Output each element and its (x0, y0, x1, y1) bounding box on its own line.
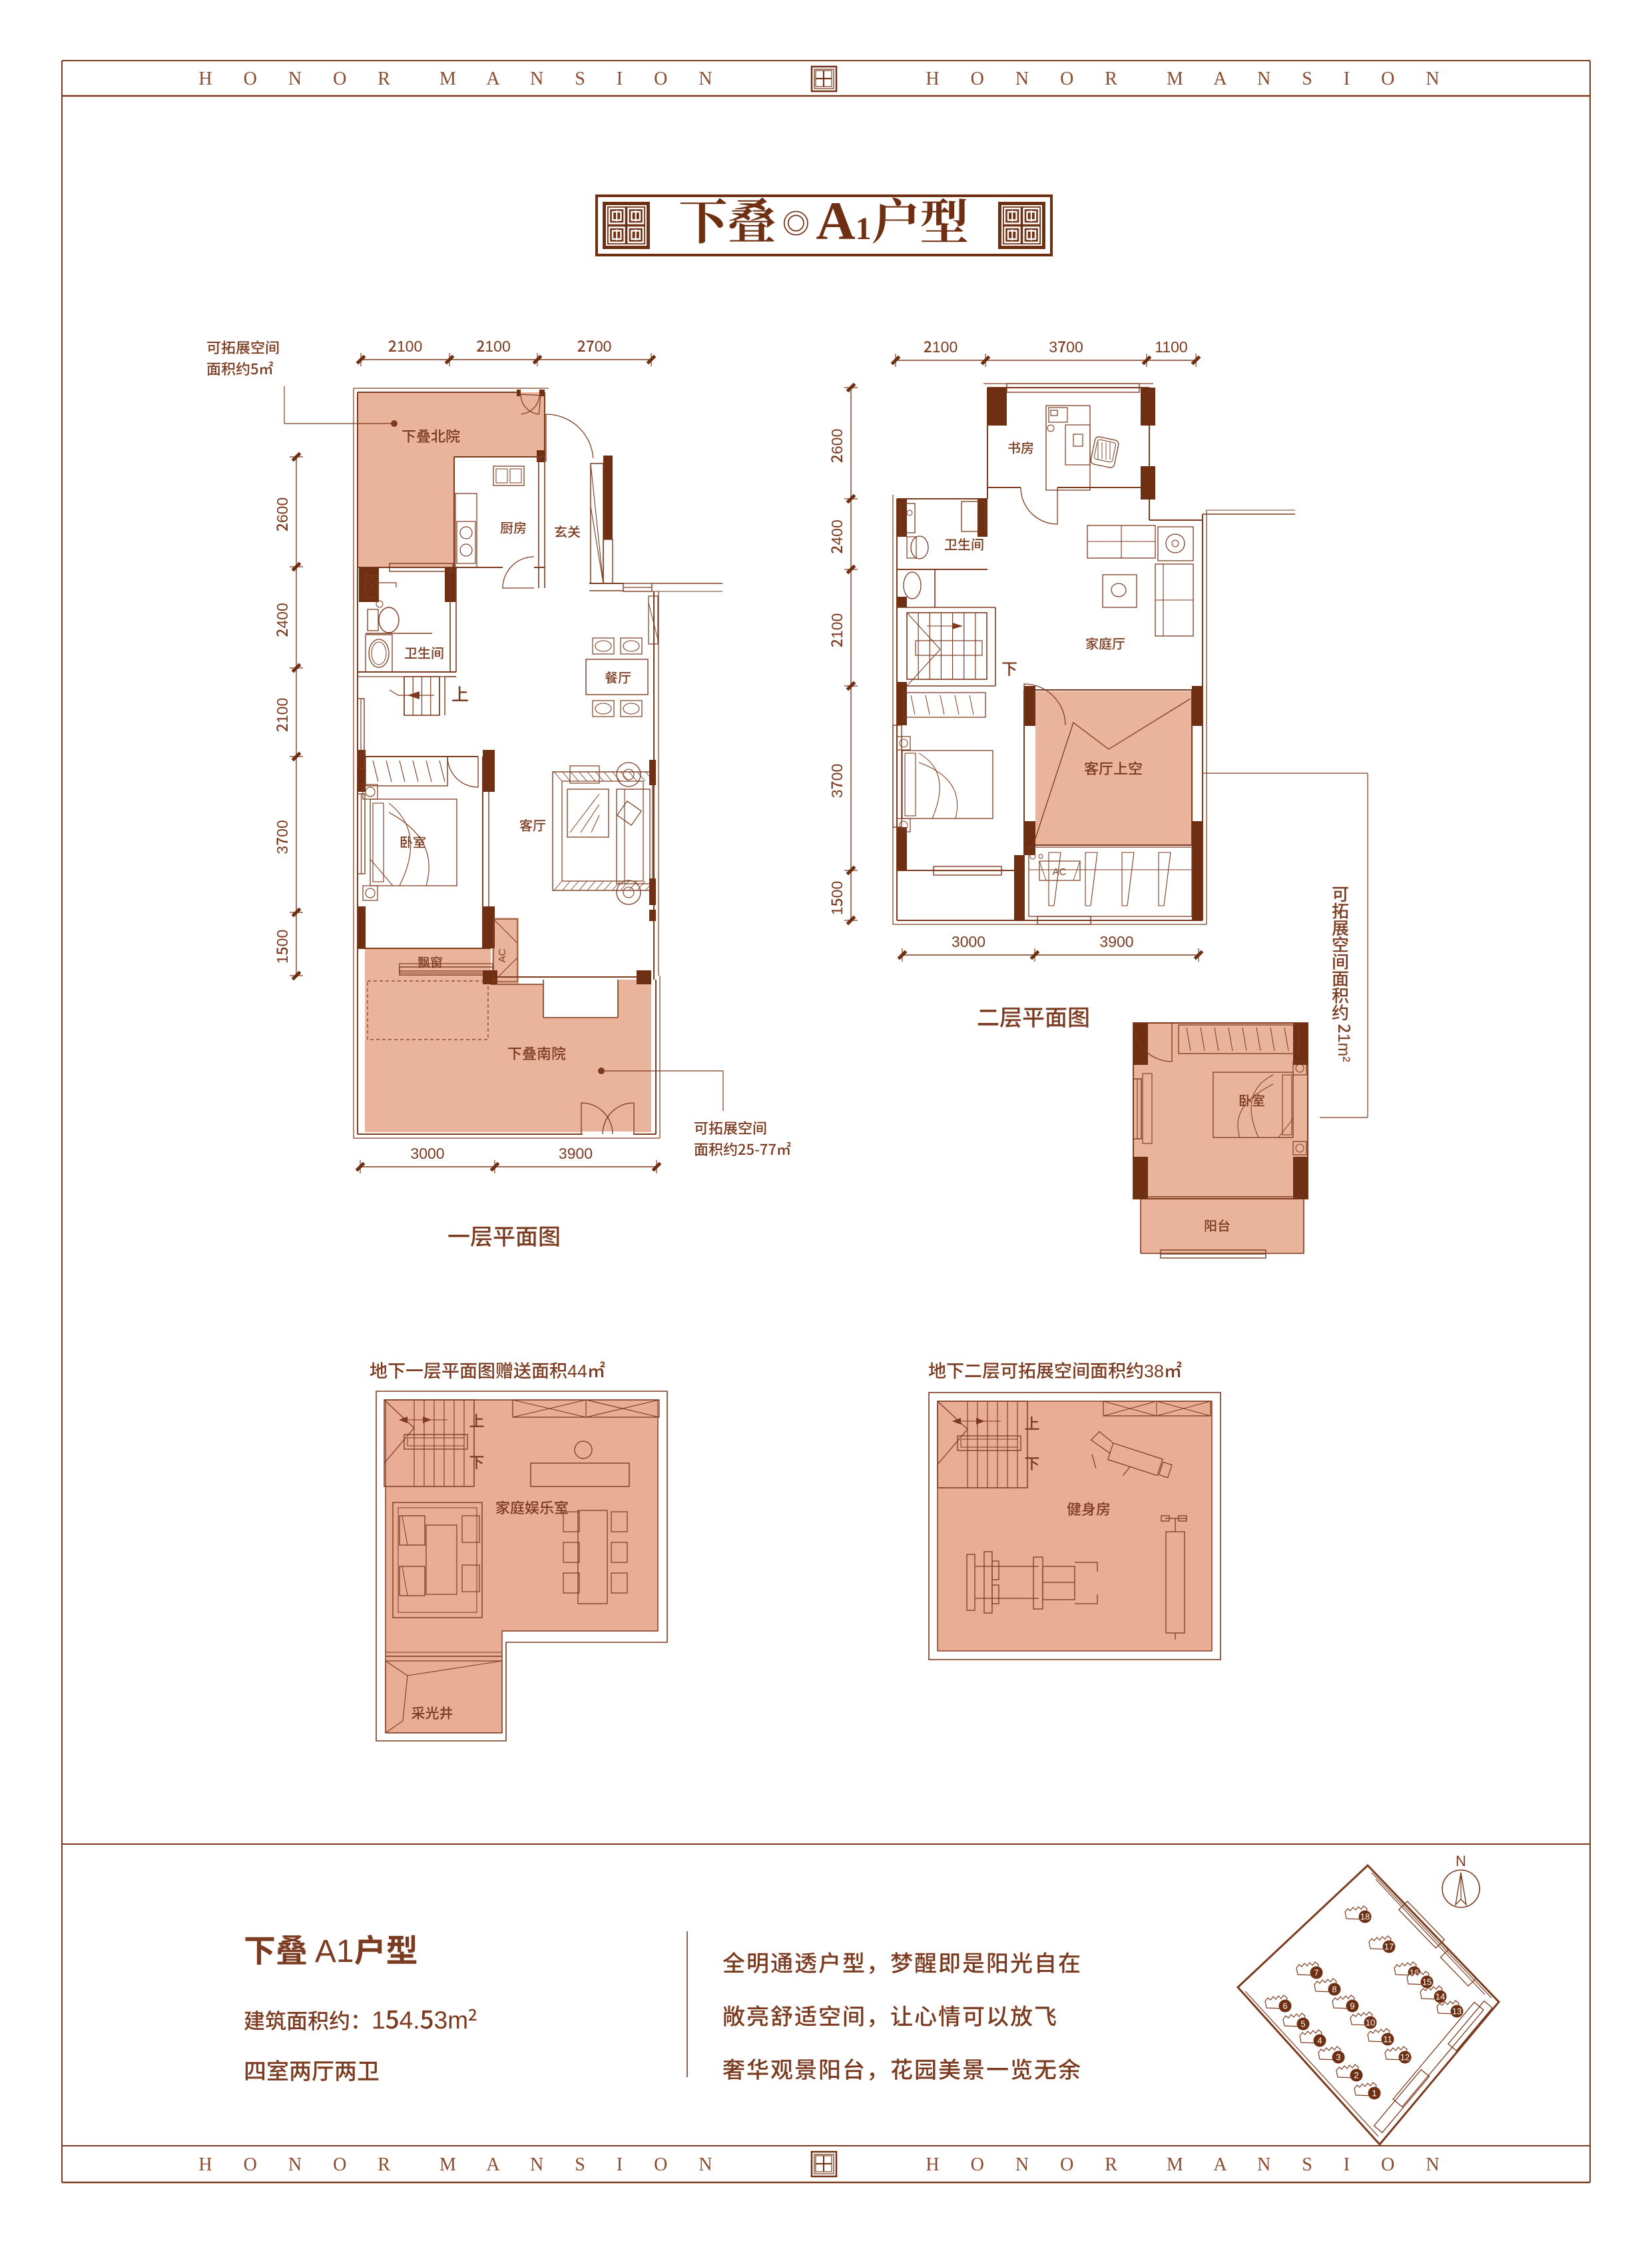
svg-text:面积约25-77㎡: 面积约25-77㎡ (694, 1138, 791, 1159)
svg-text:地下一层平面图赠送面积44㎡: 地下一层平面图赠送面积44㎡ (370, 1357, 605, 1383)
svg-text:约: 约 (1332, 1000, 1349, 1024)
svg-text:四室两厅两卫: 四室两厅两卫 (244, 2053, 380, 2086)
svg-text:2600: 2600 (270, 497, 292, 532)
svg-text:H O N O R M A N S I O N: H O N O R M A N S I O N (926, 69, 1452, 89)
svg-text:卧室: 卧室 (1239, 1090, 1265, 1110)
svg-text:8: 8 (1332, 1985, 1336, 1995)
svg-text:3900: 3900 (559, 1141, 593, 1163)
svg-text:采光井: 采光井 (412, 1703, 453, 1723)
svg-text:H O N O R M A N S I O N: H O N O R M A N S I O N (926, 2154, 1452, 2175)
svg-text:2700: 2700 (577, 334, 612, 356)
svg-text:建筑面积约：154.53m2: 建筑面积约：154.53m2 (244, 2000, 477, 2036)
svg-text:上: 上 (469, 1409, 485, 1431)
svg-text:3000: 3000 (410, 1141, 444, 1163)
svg-text:卫生间: 卫生间 (404, 643, 444, 662)
svg-text:1: 1 (1372, 2088, 1376, 2098)
svg-text:AC: AC (497, 948, 508, 962)
svg-text:2100: 2100 (270, 698, 292, 733)
svg-text:3700: 3700 (824, 764, 847, 799)
svg-text:H O N O R M A N S I O N: H O N O R M A N S I O N (198, 69, 725, 89)
svg-text:5: 5 (1300, 2019, 1305, 2029)
svg-text:书房: 书房 (1007, 438, 1034, 457)
svg-text:下叠 A1户型: 下叠 A1户型 (244, 1925, 418, 1971)
svg-text:1100: 1100 (1155, 334, 1187, 357)
svg-text:3000: 3000 (952, 929, 985, 952)
svg-text:下叠南院: 下叠南院 (507, 1042, 566, 1064)
svg-text:地下二层可拓展空间面积约38㎡: 地下二层可拓展空间面积约38㎡ (928, 1357, 1182, 1383)
svg-text:11: 11 (1383, 2035, 1392, 2045)
svg-text:二层平面图: 二层平面图 (977, 1000, 1090, 1032)
svg-text:2100: 2100 (388, 334, 423, 356)
svg-text:4: 4 (1317, 2036, 1322, 2046)
svg-text:12: 12 (1400, 2053, 1410, 2063)
svg-text:全明通透户型，梦醒即是阳光自在: 全明通透户型，梦醒即是阳光自在 (722, 1945, 1082, 1978)
svg-text:AC: AC (1053, 866, 1067, 878)
svg-text:奢华观景阳台，花园美景一览无余: 奢华观景阳台，花园美景一览无余 (722, 2052, 1082, 2084)
svg-text:健身房: 健身房 (1067, 1498, 1111, 1519)
svg-text:3: 3 (1336, 2053, 1340, 2063)
svg-text:客厅: 客厅 (519, 815, 546, 834)
svg-text:N: N (1456, 1853, 1466, 1869)
svg-text:一层平面图: 一层平面图 (447, 1219, 561, 1251)
svg-text:餐厅: 餐厅 (605, 667, 631, 687)
svg-text:3700: 3700 (1049, 334, 1083, 357)
svg-text:2600: 2600 (824, 429, 847, 464)
svg-text:10: 10 (1366, 2018, 1375, 2028)
svg-text:阳台: 阳台 (1204, 1215, 1231, 1235)
svg-text:3700: 3700 (270, 820, 292, 854)
svg-text:15: 15 (1422, 1977, 1432, 1987)
svg-text:飘窗: 飘窗 (417, 953, 443, 971)
svg-text:可拓展空间: 可拓展空间 (206, 336, 280, 358)
svg-text:下叠北院: 下叠北院 (402, 425, 460, 446)
svg-text:2100: 2100 (924, 334, 958, 357)
svg-text:1500: 1500 (824, 881, 847, 916)
svg-text:6: 6 (1282, 2001, 1287, 2011)
svg-text:14: 14 (1436, 1992, 1445, 2002)
svg-text:13: 13 (1452, 2007, 1462, 2017)
svg-text:下叠◎A1户型: 下叠◎A1户型 (679, 177, 968, 255)
svg-text:21m²: 21m² (1333, 1024, 1357, 1062)
svg-text:家庭厅: 家庭厅 (1085, 633, 1125, 653)
svg-text:17: 17 (1384, 1942, 1394, 1952)
svg-text:卫生间: 卫生间 (944, 534, 984, 553)
svg-text:2: 2 (1354, 2071, 1358, 2081)
svg-text:玄关: 玄关 (554, 521, 581, 541)
svg-text:1500: 1500 (270, 930, 292, 964)
svg-text:厨房: 厨房 (500, 517, 527, 537)
svg-text:客厅上空: 客厅上空 (1084, 757, 1143, 779)
svg-text:下: 下 (1025, 1451, 1040, 1474)
svg-text:敞亮舒适空间，让心情可以放飞: 敞亮舒适空间，让心情可以放飞 (722, 1999, 1058, 2031)
svg-text:下: 下 (469, 1450, 485, 1472)
svg-text:3900: 3900 (1099, 929, 1133, 952)
svg-text:面积约5㎡: 面积约5㎡ (206, 358, 274, 379)
svg-text:2100: 2100 (476, 334, 511, 356)
svg-text:上: 上 (451, 681, 469, 706)
svg-text:2100: 2100 (824, 613, 847, 648)
svg-text:家庭娱乐室: 家庭娱乐室 (495, 1496, 569, 1518)
svg-text:9: 9 (1350, 2001, 1354, 2011)
svg-text:上: 上 (1025, 1411, 1040, 1434)
svg-text:7: 7 (1314, 1968, 1318, 1978)
svg-text:H O N O R M A N S I O N: H O N O R M A N S I O N (198, 2154, 725, 2175)
svg-text:2400: 2400 (270, 603, 292, 637)
svg-text:可拓展空间: 可拓展空间 (694, 1117, 767, 1138)
svg-text:2400: 2400 (824, 519, 847, 554)
svg-text:卧室: 卧室 (400, 832, 426, 851)
svg-text:下: 下 (1001, 656, 1017, 679)
svg-text:18: 18 (1360, 1912, 1370, 1922)
